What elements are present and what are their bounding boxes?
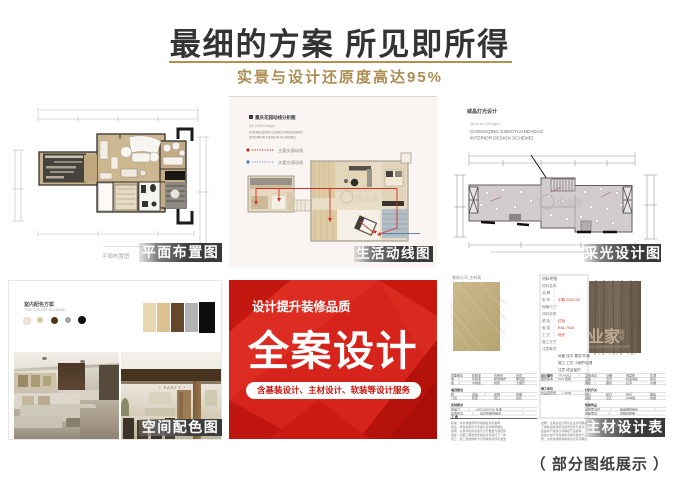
svg-text:红色: 红色 xyxy=(558,318,566,323)
svg-text:规格尺寸: 规格尺寸 xyxy=(542,304,557,309)
svg-text:USB组: USB组 xyxy=(626,395,635,400)
svg-text:CHONGQING GONGYUANDADAO: CHONGQING GONGYUANDADAO xyxy=(249,131,303,135)
svg-text:(All In All Design): (All In All Design) xyxy=(249,124,275,128)
svg-text:注意事项: 注意事项 xyxy=(542,346,557,351)
svg-text:灶具: 灶具 xyxy=(626,380,632,385)
svg-text:垭口: 垭口 xyxy=(494,395,500,400)
svg-text:五孔: 五孔 xyxy=(606,395,612,400)
svg-text:√: √ xyxy=(608,411,610,415)
svg-text:墙顶做法: 墙顶做法 xyxy=(451,387,463,392)
svg-text:V2.0 终版: V2.0 终版 xyxy=(558,376,571,381)
svg-text:威晶灯光设计: 威晶灯光设计 xyxy=(466,108,497,115)
svg-text:装: 装 xyxy=(619,328,625,336)
svg-text:图纸版本: 图纸版本 xyxy=(541,376,553,381)
svg-text:优品家装饰: 优品家装饰 xyxy=(541,390,556,395)
svg-text:地砖: 地砖 xyxy=(494,380,500,385)
svg-text:平面布置图: 平面布置图 xyxy=(102,252,130,260)
svg-text:定制衣柜组: 定制衣柜组 xyxy=(620,410,635,415)
svg-text:注意 成品保护: 注意 成品保护 xyxy=(558,367,581,372)
svg-text:窗套: 窗套 xyxy=(516,395,522,400)
svg-text:套装: 套装 xyxy=(472,395,478,400)
svg-text:软装饰品: 软装饰品 xyxy=(585,402,597,407)
svg-text:INTERIOR DESIGN SCHEME): INTERIOR DESIGN SCHEME) xyxy=(249,136,296,140)
svg-text:完工：竣工验收保修卡与质保协议同步发放: 完工：竣工验收保修卡与质保协议同步发放 xyxy=(451,436,506,441)
svg-text:重庆花园动线分析图: 重庆花园动线分析图 xyxy=(255,114,296,121)
svg-text:中联-3302-00: 中联-3302-00 xyxy=(558,297,580,302)
svg-text:型 号: 型 号 xyxy=(542,297,551,302)
svg-text:定制家具: 定制家具 xyxy=(450,402,464,407)
svg-text:材料明细: 材料明细 xyxy=(542,276,557,281)
svg-text:颜 色: 颜 色 xyxy=(542,318,551,323)
svg-text:饰: 饰 xyxy=(619,334,625,342)
svg-text:施工方式: 施工方式 xyxy=(542,339,557,344)
svg-text:烟机: 烟机 xyxy=(606,380,612,385)
svg-text:√: √ xyxy=(522,411,524,415)
svg-text:面 层: 面 层 xyxy=(542,325,551,330)
svg-text:水槽: 水槽 xyxy=(650,380,656,385)
svg-text:业家: 业家 xyxy=(588,327,621,346)
svg-text:√: √ xyxy=(610,407,612,411)
svg-text:插座: 插座 xyxy=(585,395,591,400)
svg-text:√: √ xyxy=(654,407,656,411)
svg-text:√ 2018: √ 2018 xyxy=(562,391,571,395)
svg-text:地面 找平 基层 防潮: 地面 找平 基层 防潮 xyxy=(558,353,590,358)
svg-text:大理石: 大理石 xyxy=(516,380,525,385)
svg-text:CHONGQING GONGYUANDADAO: CHONGQING GONGYUANDADAO xyxy=(470,129,544,134)
svg-text:优品家: 优品家 xyxy=(355,193,380,203)
svg-text:√: √ xyxy=(468,407,470,411)
svg-text:次要交通动线: 次要交通动线 xyxy=(278,159,304,166)
svg-text:附：主材进场验收单需双方签字确认。: 附：主材进场验收单需双方签字确认。 xyxy=(541,436,590,441)
svg-text:品 牌: 品 牌 xyxy=(542,290,551,295)
svg-text:木地板: 木地板 xyxy=(472,380,481,385)
svg-text:材料名称: 材料名称 xyxy=(542,283,557,288)
svg-text:装饰公司 主材表: 装饰公司 主材表 xyxy=(452,274,481,280)
svg-text:RAL-7035: RAL-7035 xyxy=(558,326,574,330)
svg-text:施工单位: 施工单位 xyxy=(541,385,553,390)
svg-text:A DECORATION GROUP: A DECORATION GROUP xyxy=(589,345,631,349)
svg-text:材料说明: 材料说明 xyxy=(542,311,557,316)
svg-text:工 艺: 工 艺 xyxy=(542,332,551,337)
svg-text:地插: 地插 xyxy=(650,395,656,400)
svg-text:哑光: 哑光 xyxy=(558,332,566,337)
svg-text:灯具开关: 灯具开关 xyxy=(585,387,597,392)
svg-text:INTERIOR DESIGN SCHEME): INTERIOR DESIGN SCHEME) xyxy=(470,136,534,141)
svg-text:All In Ab Design:): All In Ab Design:) xyxy=(470,121,501,126)
svg-text:优业家: 优业家 xyxy=(556,197,584,208)
svg-text:√: √ xyxy=(594,381,596,385)
svg-text:橱柜: 橱柜 xyxy=(585,380,591,385)
svg-text:施工 工艺 小细节处理: 施工 工艺 小细节处理 xyxy=(558,360,593,365)
svg-text:主要交通动线: 主要交通动线 xyxy=(278,147,304,154)
svg-text:地: 地 xyxy=(451,380,454,385)
svg-text:工 费: 工 费 xyxy=(451,414,458,419)
svg-text:遮光帘卷帘组合: 遮光帘卷帘组合 xyxy=(480,410,501,415)
svg-text:门窗: 门窗 xyxy=(451,395,457,400)
svg-text:√: √ xyxy=(484,392,486,396)
svg-text:√: √ xyxy=(458,381,460,385)
svg-text:√: √ xyxy=(472,411,474,415)
svg-text:成品家具: 成品家具 xyxy=(585,410,597,415)
